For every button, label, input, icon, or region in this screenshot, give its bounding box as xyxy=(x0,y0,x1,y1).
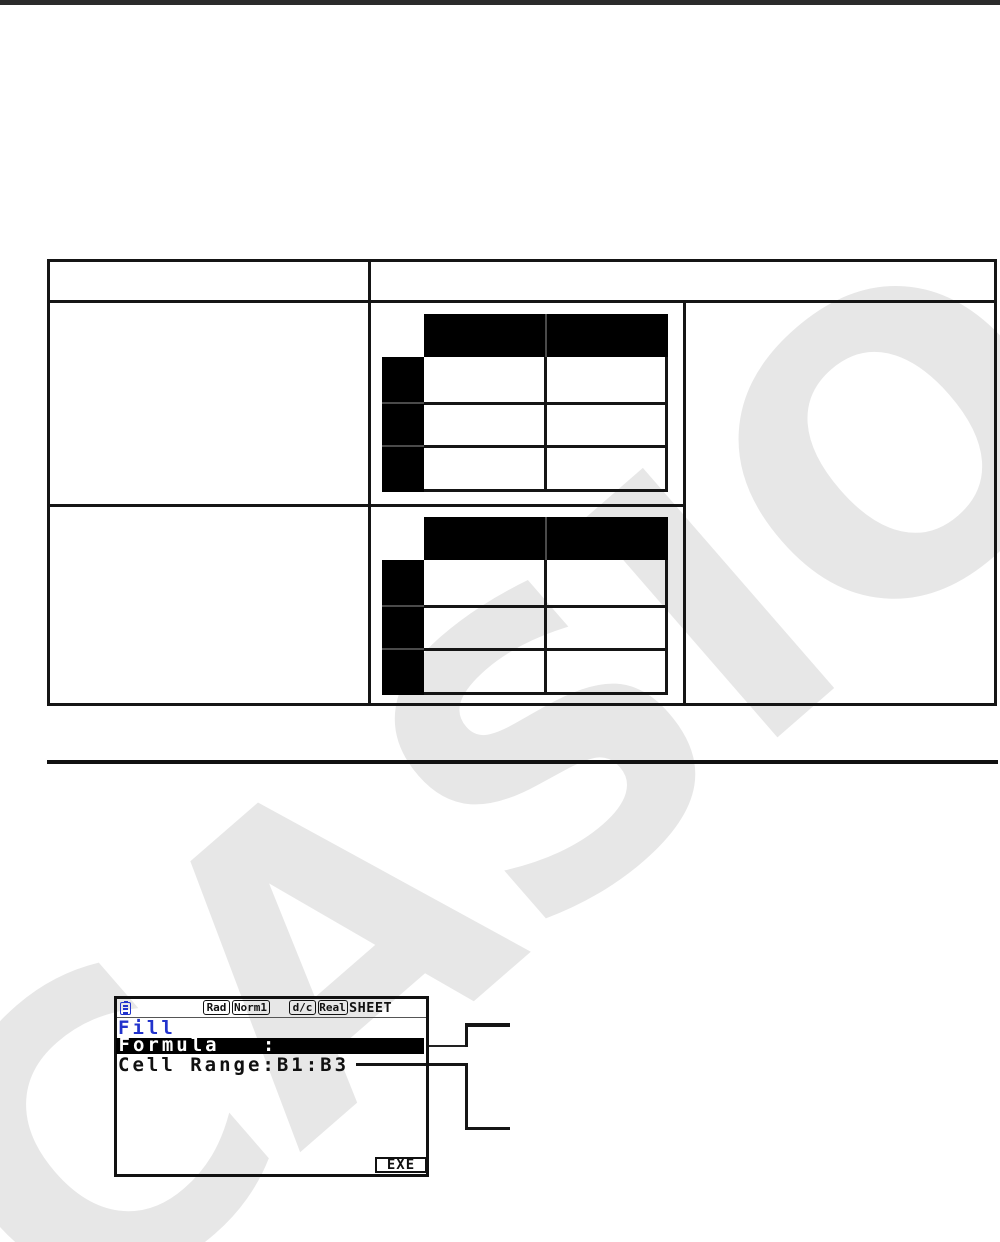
formula-row-highlighted[interactable]: Formula : xyxy=(116,1038,424,1054)
grid-line-vertical-middle xyxy=(544,357,547,492)
page-top-edge xyxy=(0,0,1000,5)
grid-line-vertical-right xyxy=(665,560,668,695)
section-divider-rule xyxy=(47,760,998,764)
spreadsheet-mockup-1 xyxy=(382,314,668,495)
exe-softkey[interactable]: EXE xyxy=(375,1157,427,1173)
grid-line-horizontal-bottom xyxy=(424,692,668,695)
column-header-divider xyxy=(545,314,547,357)
status-badge-real: Real xyxy=(318,1000,348,1015)
row-header-divider-2 xyxy=(382,648,424,650)
calculator-screen: Rad Norm1 d/c Real SHEET Fill Formula : … xyxy=(114,996,429,1177)
callout-bracket-top-vertical xyxy=(465,1023,469,1047)
status-badge-dc: d/c xyxy=(289,1000,316,1015)
grid-line-horizontal-2 xyxy=(424,445,668,448)
manual-page: CASIO xyxy=(0,0,1000,1242)
grid-line-horizontal-bottom xyxy=(424,489,668,492)
callout-bracket-bottom-arm xyxy=(465,1127,510,1130)
battery-stripe xyxy=(123,1008,128,1010)
grid-line-horizontal-1 xyxy=(424,402,668,405)
status-badge-rad: Rad xyxy=(203,1000,230,1015)
row-header-divider-1 xyxy=(382,605,424,607)
row-header-divider-2 xyxy=(382,445,424,447)
column-header-divider xyxy=(545,517,547,560)
grid-line-vertical-right xyxy=(665,357,668,492)
battery-stripe xyxy=(123,1012,128,1014)
app-name-label: SHEET xyxy=(349,1000,392,1016)
grid-line-horizontal-2 xyxy=(424,648,668,651)
battery-stripe xyxy=(123,1005,128,1007)
table-row-divider xyxy=(47,504,686,507)
callout-bracket-top-arm xyxy=(465,1023,510,1027)
spreadsheet-mockup-2 xyxy=(382,517,668,698)
cell-range-row: Cell Range:B1:B3 xyxy=(118,1056,349,1074)
table-column-divider-1 xyxy=(368,259,371,706)
row-header-divider-1 xyxy=(382,402,424,404)
status-badge-norm1: Norm1 xyxy=(232,1000,270,1015)
callout-connector-formula xyxy=(429,1045,467,1047)
battery-cap xyxy=(124,1001,128,1003)
grid-line-vertical-middle xyxy=(544,560,547,695)
row-header-band xyxy=(382,357,424,492)
row-header-band xyxy=(382,560,424,695)
battery-icon xyxy=(120,1002,131,1015)
callout-bracket-bottom-vertical xyxy=(465,1063,469,1130)
grid-line-horizontal-1 xyxy=(424,605,668,608)
table-header-divider xyxy=(47,300,997,303)
